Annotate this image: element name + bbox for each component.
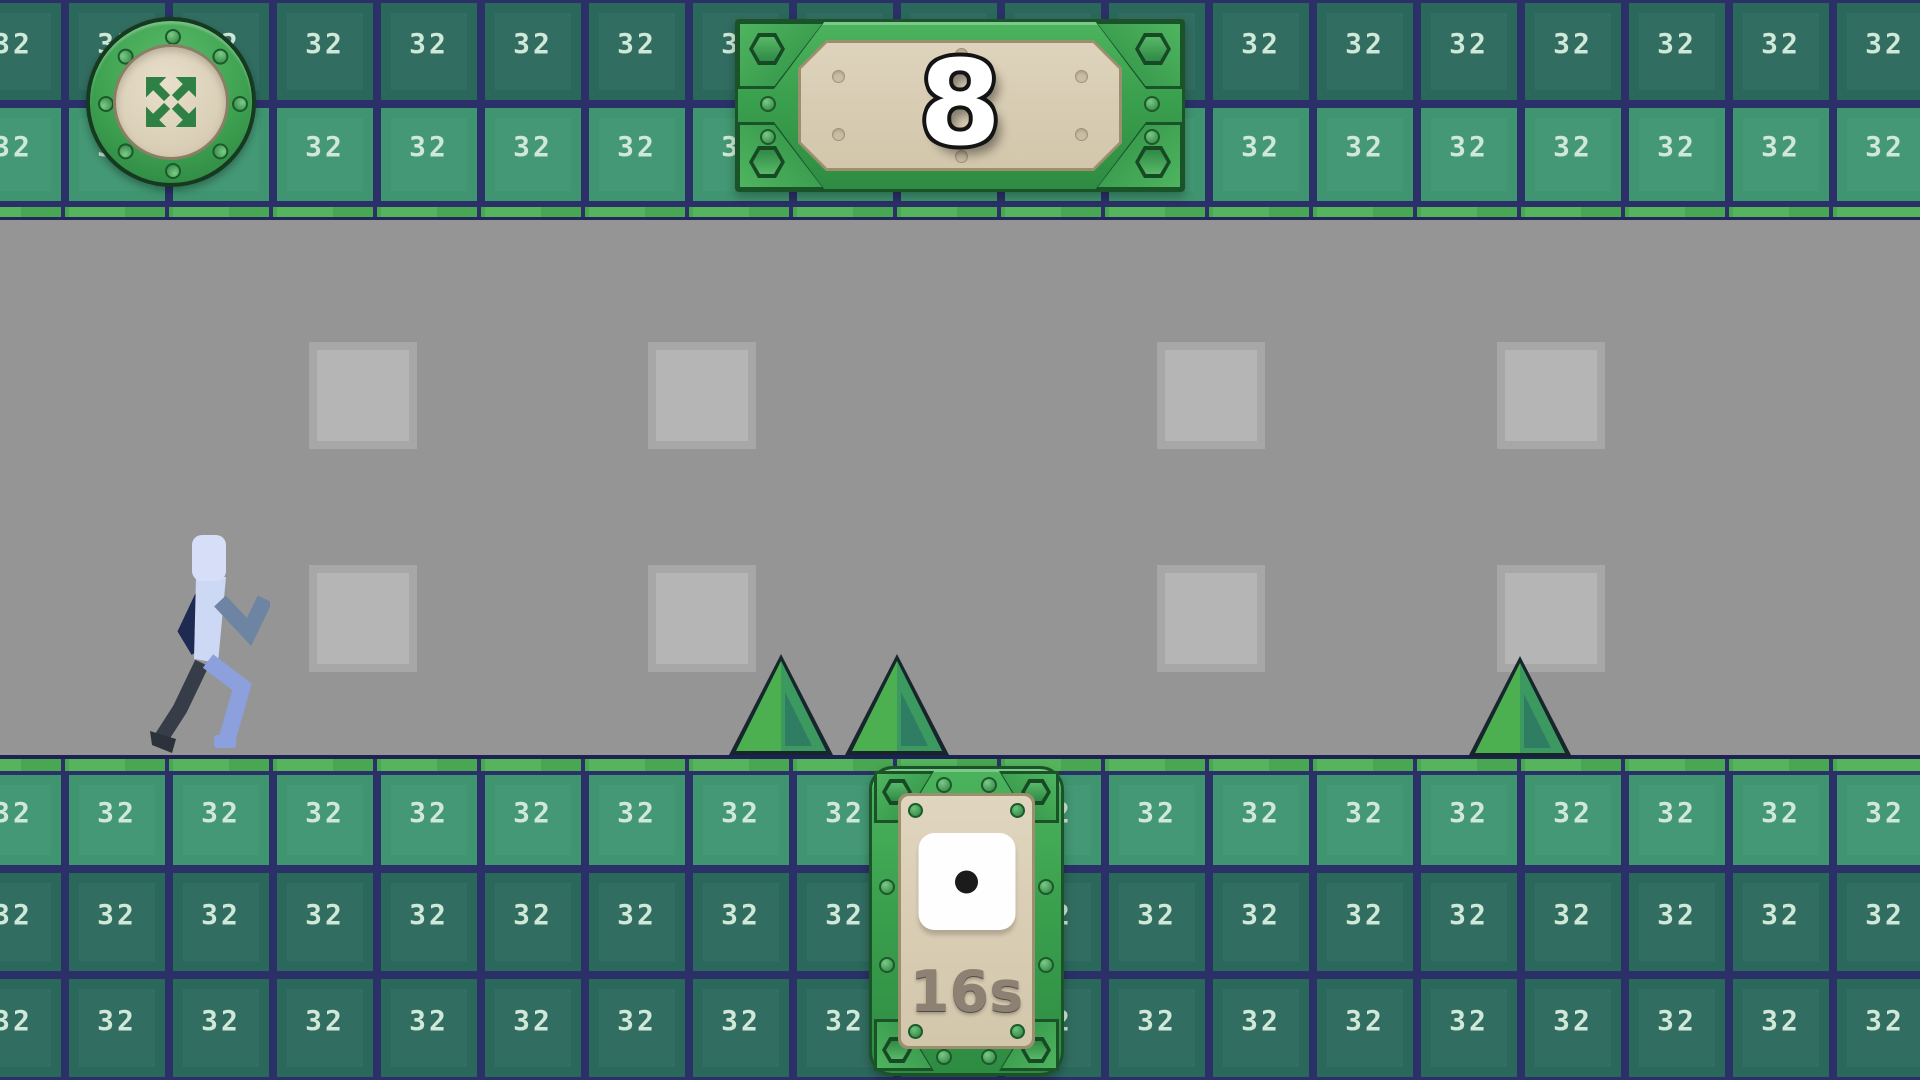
- wall-tile: 32: [1421, 775, 1517, 865]
- wall-tile: 32: [1109, 775, 1205, 865]
- wall-tile: 32: [1317, 775, 1413, 865]
- game-stage[interactable]: 3232323232323232323232323232323232323232…: [0, 0, 1920, 1080]
- tile-size-label: 32: [1553, 796, 1593, 829]
- tile-size-label: 32: [1761, 1004, 1801, 1037]
- spike-hazard: [1466, 654, 1574, 759]
- wall-tile: 32: [0, 873, 61, 971]
- ghost-platform-square: [648, 342, 756, 449]
- rivet-icon: [936, 1049, 952, 1065]
- wall-tile: 32: [1629, 775, 1725, 865]
- tile-size-label: 32: [1241, 898, 1281, 931]
- tile-size-label: 32: [409, 898, 449, 931]
- player-back-leg: [162, 663, 202, 737]
- wall-tile: 32: [1317, 979, 1413, 1077]
- wall-tile: 32: [277, 3, 373, 100]
- wall-tile: 32: [1525, 3, 1621, 100]
- dice-timer-label: 16s: [872, 959, 1061, 1025]
- wall-tile: 32: [589, 873, 685, 971]
- wall-tile: 32: [173, 873, 269, 971]
- wall-tile: 32: [1421, 3, 1517, 100]
- tile-size-label: 32: [1761, 130, 1801, 163]
- tile-size-label: 32: [513, 1004, 553, 1037]
- player-front-leg: [208, 661, 242, 743]
- tile-size-label: 32: [1553, 130, 1593, 163]
- wall-tile: 32: [485, 3, 581, 100]
- wall-tile: 32: [1421, 873, 1517, 971]
- tile-size-label: 32: [617, 796, 657, 829]
- tile-size-label: 32: [1345, 130, 1385, 163]
- tile-size-label: 32: [513, 130, 553, 163]
- tile-size-label: 32: [1137, 1004, 1177, 1037]
- fullscreen-expand-icon: [132, 63, 210, 141]
- wall-tile: 32: [485, 108, 581, 201]
- player-front-arm: [220, 599, 265, 632]
- wall-tile: 32: [1629, 979, 1725, 1077]
- wall-tile: 32: [485, 775, 581, 865]
- tile-size-label: 32: [305, 130, 345, 163]
- rivet-icon: [165, 163, 181, 179]
- rivet-icon: [1010, 803, 1025, 818]
- wall-tile: 32: [1213, 3, 1309, 100]
- fullscreen-button[interactable]: [86, 17, 256, 187]
- tile-size-label: 32: [201, 898, 241, 931]
- wall-tile: 32: [173, 979, 269, 1077]
- tile-size-label: 32: [97, 1004, 137, 1037]
- tile-size-label: 32: [1657, 130, 1697, 163]
- tile-size-label: 32: [617, 898, 657, 931]
- wall-tile: 32: [1317, 108, 1413, 201]
- wall-tile: 32: [485, 979, 581, 1077]
- tile-size-label: 32: [1657, 27, 1697, 60]
- wall-tile: 32: [1629, 3, 1725, 100]
- tile-size-label: 32: [0, 130, 33, 163]
- tile-size-label: 32: [409, 1004, 449, 1037]
- wall-tile: 32: [1317, 3, 1413, 100]
- wall-tile: 32: [1733, 3, 1829, 100]
- wall-tile: 32: [381, 3, 477, 100]
- wall-tile: 32: [0, 979, 61, 1077]
- tile-size-label: 32: [825, 796, 865, 829]
- wall-tile: 32: [1837, 873, 1920, 971]
- score-frame: 8: [735, 19, 1185, 192]
- wall-tile: 32: [1421, 108, 1517, 201]
- tile-size-label: 32: [1449, 898, 1489, 931]
- tile-size-label: 32: [0, 898, 33, 931]
- wall-tile: 32: [1213, 873, 1309, 971]
- tile-size-label: 32: [201, 1004, 241, 1037]
- tile-size-label: 32: [1761, 27, 1801, 60]
- wall-tile: 32: [381, 775, 477, 865]
- ghost-platform-square: [309, 565, 417, 672]
- tile-size-label: 32: [1345, 796, 1385, 829]
- tile-size-label: 32: [1761, 898, 1801, 931]
- ghost-platform-square: [309, 342, 417, 449]
- wall-tile: 32: [173, 775, 269, 865]
- tile-size-label: 32: [1241, 27, 1281, 60]
- wall-tile: 32: [693, 979, 789, 1077]
- tile-size-label: 32: [1449, 1004, 1489, 1037]
- wall-tile: 32: [1213, 108, 1309, 201]
- rivet-icon: [936, 777, 952, 793]
- wall-tile: 32: [0, 108, 61, 201]
- rivet-icon: [1010, 1024, 1025, 1039]
- tile-size-label: 32: [1865, 796, 1905, 829]
- wall-tile: 32: [1733, 108, 1829, 201]
- player-torso: [194, 577, 226, 663]
- tile-size-label: 32: [1345, 898, 1385, 931]
- tile-size-label: 32: [1137, 796, 1177, 829]
- tile-size-label: 32: [409, 796, 449, 829]
- tile-size-label: 32: [1865, 27, 1905, 60]
- tile-size-label: 32: [1345, 1004, 1385, 1037]
- tile-size-label: 32: [1657, 796, 1697, 829]
- tile-size-label: 32: [97, 898, 137, 931]
- wall-tile: 32: [69, 873, 165, 971]
- die-face: [918, 833, 1015, 930]
- wall-tile: 32: [1837, 3, 1920, 100]
- tile-size-label: 32: [305, 1004, 345, 1037]
- rivet-icon: [1038, 879, 1054, 895]
- tile-size-label: 32: [0, 796, 33, 829]
- dice-timer-panel: 16s: [869, 766, 1064, 1076]
- wall-tile: 32: [381, 979, 477, 1077]
- tile-size-label: 32: [305, 27, 345, 60]
- tile-size-label: 32: [201, 796, 241, 829]
- tile-size-label: 32: [825, 898, 865, 931]
- player-front-foot: [214, 735, 236, 748]
- wall-tile: 32: [277, 873, 373, 971]
- wall-tile: 32: [381, 108, 477, 201]
- ghost-platform-square: [1497, 342, 1605, 449]
- wall-tile: 32: [277, 108, 373, 201]
- tile-size-label: 32: [409, 130, 449, 163]
- die-pip: [955, 870, 978, 893]
- wall-tile: 32: [1317, 873, 1413, 971]
- tile-size-label: 32: [825, 1004, 865, 1037]
- spike-hazard: [843, 652, 951, 757]
- wall-tile: 32: [1629, 108, 1725, 201]
- tile-size-label: 32: [1449, 796, 1489, 829]
- tile-size-label: 32: [1865, 130, 1905, 163]
- tile-size-label: 32: [1449, 27, 1489, 60]
- wall-tile: 32: [1525, 108, 1621, 201]
- tile-size-label: 32: [513, 27, 553, 60]
- rivet-icon: [981, 777, 997, 793]
- rivet-icon: [908, 803, 923, 818]
- wall-tile: 32: [0, 3, 61, 100]
- wall-tile: 32: [1525, 979, 1621, 1077]
- tile-size-label: 32: [0, 27, 33, 60]
- player-head: [192, 535, 226, 581]
- tile-size-label: 32: [1553, 898, 1593, 931]
- ghost-platform-square: [1157, 565, 1265, 672]
- ghost-platform-square: [1157, 342, 1265, 449]
- tile-size-label: 32: [721, 1004, 761, 1037]
- wall-tile: 32: [69, 979, 165, 1077]
- rivet-icon: [98, 96, 114, 112]
- rivet-icon: [165, 29, 181, 45]
- tile-size-label: 32: [1657, 898, 1697, 931]
- tile-size-label: 32: [1137, 898, 1177, 931]
- tile-size-label: 32: [721, 898, 761, 931]
- tile-size-label: 32: [0, 1004, 33, 1037]
- wall-tile: 32: [589, 979, 685, 1077]
- wall-tile: 32: [1733, 775, 1829, 865]
- score-panel: 8: [735, 19, 1185, 192]
- wall-tile: 32: [1213, 775, 1309, 865]
- tile-size-label: 32: [617, 27, 657, 60]
- wall-tile: 32: [1629, 873, 1725, 971]
- tile-size-label: 32: [1241, 1004, 1281, 1037]
- wall-tile: 32: [485, 873, 581, 971]
- wall-tile: 32: [1213, 979, 1309, 1077]
- wall-tile: 32: [1837, 979, 1920, 1077]
- wall-tile: 32: [69, 775, 165, 865]
- tile-size-label: 32: [1657, 1004, 1697, 1037]
- rivet-icon: [908, 1024, 923, 1039]
- tile-size-label: 32: [305, 898, 345, 931]
- wall-tile: 32: [277, 775, 373, 865]
- wall-tile: 32: [693, 775, 789, 865]
- top-edge-grass-strip: [0, 207, 1920, 217]
- tile-size-label: 32: [409, 27, 449, 60]
- tile-size-label: 32: [1865, 1004, 1905, 1037]
- tile-size-label: 32: [721, 796, 761, 829]
- wall-tile: 32: [1837, 108, 1920, 201]
- wall-tile: 32: [589, 775, 685, 865]
- wall-tile: 32: [1525, 775, 1621, 865]
- wall-tile: 32: [1109, 873, 1205, 971]
- wall-tile: 32: [1837, 775, 1920, 865]
- wall-tile: 32: [1733, 979, 1829, 1077]
- tile-size-label: 32: [1345, 27, 1385, 60]
- player-character: [150, 533, 270, 757]
- tile-size-label: 32: [1449, 130, 1489, 163]
- wall-tile: 32: [589, 108, 685, 201]
- tile-size-label: 32: [1553, 1004, 1593, 1037]
- tile-size-label: 32: [617, 130, 657, 163]
- tile-size-label: 32: [513, 898, 553, 931]
- tile-size-label: 32: [1241, 796, 1281, 829]
- wall-tile: 32: [589, 3, 685, 100]
- tile-size-label: 32: [1553, 27, 1593, 60]
- score-value: 8: [738, 22, 1182, 189]
- rivet-icon: [879, 879, 895, 895]
- tile-size-label: 32: [1761, 796, 1801, 829]
- tile-size-label: 32: [97, 796, 137, 829]
- tile-size-label: 32: [513, 796, 553, 829]
- wall-tile: 32: [1733, 873, 1829, 971]
- wall-tile: 32: [381, 873, 477, 971]
- wall-tile: 32: [1109, 979, 1205, 1077]
- tile-size-label: 32: [617, 1004, 657, 1037]
- rivet-icon: [981, 1049, 997, 1065]
- wall-tile: 32: [0, 775, 61, 865]
- tile-size-label: 32: [1241, 130, 1281, 163]
- wall-tile: 32: [277, 979, 373, 1077]
- tile-size-label: 32: [305, 796, 345, 829]
- wall-tile: 32: [693, 873, 789, 971]
- wall-tile: 32: [1525, 873, 1621, 971]
- rivet-icon: [232, 96, 248, 112]
- dice-frame: 16s: [869, 766, 1064, 1076]
- wall-tile: 32: [1421, 979, 1517, 1077]
- spike-hazard: [727, 652, 835, 757]
- tile-size-label: 32: [1865, 898, 1905, 931]
